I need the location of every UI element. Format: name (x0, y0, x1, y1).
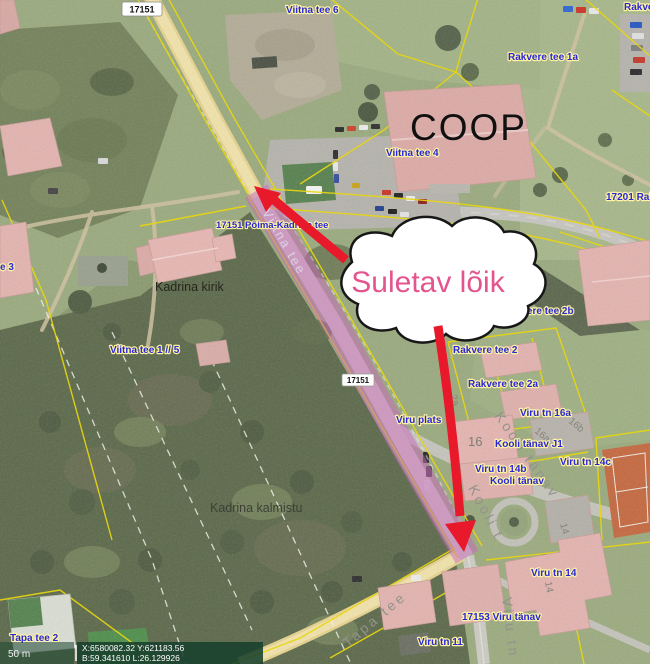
aerial-grain-texture (0, 0, 650, 664)
coordinate-xy: X:6580082.32 Y:621183.56 (82, 643, 185, 653)
coordinate-bl: B:59.341610 L:26.129926 (82, 653, 180, 663)
label-rakvere-tee-2: Rakvere tee 2 (453, 345, 518, 356)
label-kooli-tanav-j1: Kooli tänav J1 (495, 439, 563, 450)
label-viru-tn-11: Viru tn 11 (418, 637, 463, 648)
label-rakvere-top-right: Rakvere (624, 2, 650, 13)
statusbar: 50 m X:6580082.32 Y:621183.56 B:59.34161… (0, 642, 263, 664)
map-application: Viitna tee Kooli tänav Kooli t Tapa tee … (0, 0, 650, 664)
label-viitna-tee-4: Viitna tee 4 (386, 148, 439, 159)
label-tee-3-partial: e 3 (0, 262, 14, 273)
label-rakvere-tee-2a: Rakvere tee 2a (468, 379, 538, 390)
label-viitna-tee-6: Viitna tee 6 (286, 5, 339, 16)
label-17201-rakvere: 17201 Rakv (606, 192, 650, 203)
label-17153-viru-tanav: 17153 Viru tänav (462, 612, 541, 623)
label-viru-tn-16a: Viru tn 16a (520, 408, 571, 419)
label-viru-tn-14b: Viru tn 14b (475, 464, 527, 475)
label-viru-tn-14: Viru tn 14 (531, 568, 577, 579)
label-viitna-tee-1-5: Viitna tee 1 // 5 (110, 345, 180, 356)
label-kooli-tanav: Kooli tänav (490, 476, 544, 487)
scale-label: 50 m (8, 649, 30, 660)
parcel-16: 16 (468, 434, 482, 449)
label-rakvere-tee-1a: Rakvere tee 1a (508, 52, 578, 63)
annotation-closed-section-text: Suletav lõik (351, 266, 505, 299)
badge-17151-top: 17151 (129, 5, 154, 15)
label-kadrina-kalmistu: Kadrina kalmistu (210, 501, 302, 515)
label-coop: COOP (410, 107, 527, 148)
badge-17151-mid: 17151 (347, 376, 370, 385)
label-kadrina-kirik: Kadrina kirik (155, 280, 225, 294)
label-viru-tn-14c: Viru tn 14c (560, 457, 611, 468)
map-viewport[interactable]: Viitna tee Kooli tänav Kooli t Tapa tee … (0, 0, 650, 664)
label-viru-plats: Viru plats (396, 415, 442, 426)
